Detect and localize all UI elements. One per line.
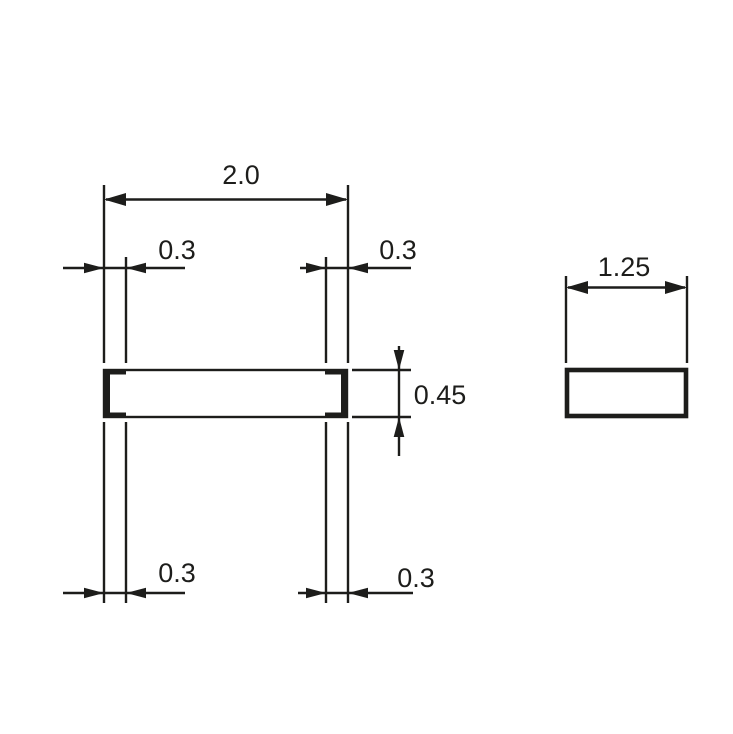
terminal-dimension-label: 0.3 xyxy=(397,563,435,593)
arrowhead-right-icon xyxy=(665,281,687,294)
arrowhead-left-icon xyxy=(566,281,588,294)
end-view-body xyxy=(567,370,686,416)
arrowhead-up-icon xyxy=(394,417,405,437)
arrowhead-left-icon xyxy=(104,193,126,206)
top-right-terminal-dimension: 0.3 xyxy=(300,235,417,363)
bottom-right-terminal-dimension: 0.3 xyxy=(298,422,435,603)
technical-drawing: 2.0 0.3 0.3 0.45 xyxy=(0,0,733,734)
top-left-terminal-dimension: 0.3 xyxy=(63,235,196,363)
thickness-dimension: 0.45 xyxy=(352,346,466,456)
arrowhead-left-icon xyxy=(348,263,368,274)
resistor-end-view: 1.25 xyxy=(566,252,687,416)
arrowhead-left-icon xyxy=(126,263,146,274)
arrowhead-left-icon xyxy=(126,588,146,599)
thickness-dimension-label: 0.45 xyxy=(414,380,467,410)
arrowhead-right-icon xyxy=(84,588,104,599)
arrowhead-right-icon xyxy=(326,193,348,206)
terminal-dimension-label: 0.3 xyxy=(158,558,196,588)
arrowhead-left-icon xyxy=(348,588,368,599)
arrowhead-right-icon xyxy=(306,588,326,599)
arrowhead-right-icon xyxy=(306,263,326,274)
arrowhead-right-icon xyxy=(84,263,104,274)
resistor-body-outline xyxy=(104,370,347,417)
length-dimension-label: 2.0 xyxy=(222,160,260,190)
terminal-dimension-label: 0.3 xyxy=(379,235,417,265)
bottom-left-terminal-dimension: 0.3 xyxy=(63,422,196,603)
width-dimension-label: 1.25 xyxy=(598,252,651,282)
resistor-dimension-diagram: 2.0 0.3 0.3 0.45 xyxy=(0,0,733,734)
length-dimension: 2.0 xyxy=(104,160,348,363)
arrowhead-down-icon xyxy=(394,350,405,370)
terminal-dimension-label: 0.3 xyxy=(158,235,196,265)
resistor-side-view xyxy=(103,369,348,418)
